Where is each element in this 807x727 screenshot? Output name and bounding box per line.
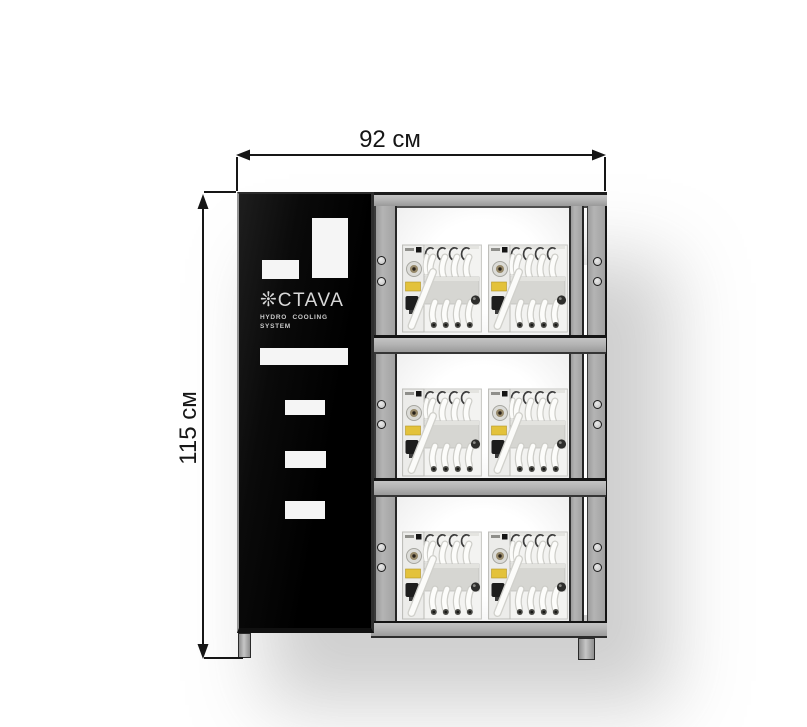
shelf-divider-1 — [374, 335, 606, 354]
screw-hole — [593, 257, 602, 266]
vent-cutout — [312, 218, 348, 278]
cooling-unit-graphic — [402, 387, 482, 478]
screw-hole — [593, 543, 602, 552]
shelf-row-2 — [399, 387, 570, 478]
cooling-unit-graphic — [488, 530, 568, 621]
screw-hole — [593, 420, 602, 429]
brand-tagline-line1: HYDRO COOLING — [260, 314, 365, 321]
cooling-unit — [488, 387, 568, 478]
cabinet-door: ❊ CTAVA HYDRO COOLING SYSTEM — [237, 192, 374, 633]
screw-hole — [377, 400, 386, 409]
vent-cutout — [262, 260, 299, 279]
cooling-unit-graphic — [402, 530, 482, 621]
brand-name: CTAVA — [278, 291, 345, 310]
leg-right — [578, 638, 595, 660]
screw-hole — [377, 563, 386, 572]
screw-hole — [377, 277, 386, 286]
brand-tagline-line2: SYSTEM — [260, 323, 365, 330]
height-dimension-label: 115 см — [175, 368, 203, 488]
screw-hole — [377, 256, 386, 265]
bottom-rail — [371, 621, 607, 638]
vent-cutout — [260, 348, 348, 365]
vent-cutout — [285, 501, 325, 519]
cooling-unit — [402, 530, 482, 621]
rack-post-left — [374, 206, 397, 623]
leg-left — [238, 633, 251, 658]
shelf-divider-2 — [374, 478, 606, 497]
screw-hole — [593, 563, 602, 572]
cooling-unit-graphic — [402, 243, 482, 334]
shelf-row-3 — [399, 530, 570, 621]
cooling-unit — [402, 387, 482, 478]
screw-hole — [593, 400, 602, 409]
shelf-row-1 — [399, 243, 570, 334]
brand-logo: ❊ CTAVA HYDRO COOLING SYSTEM — [260, 290, 365, 330]
cooling-unit — [402, 243, 482, 334]
cooling-unit — [488, 243, 568, 334]
cooling-unit — [488, 530, 568, 621]
width-dimension-label: 92 см — [330, 126, 450, 154]
screw-hole — [593, 277, 602, 286]
screw-hole — [377, 543, 386, 552]
rack-post-right-inner — [569, 206, 584, 623]
cooling-unit-graphic — [488, 243, 568, 334]
snowflake-icon: ❊ — [260, 290, 277, 310]
screw-hole — [377, 420, 386, 429]
product-dimension-diagram: ❊ CTAVA HYDRO COOLING SYSTEM 92 см 115 с… — [0, 0, 807, 727]
cooling-unit-graphic — [488, 387, 568, 478]
vent-cutout — [285, 451, 326, 468]
vent-cutout — [285, 400, 325, 415]
